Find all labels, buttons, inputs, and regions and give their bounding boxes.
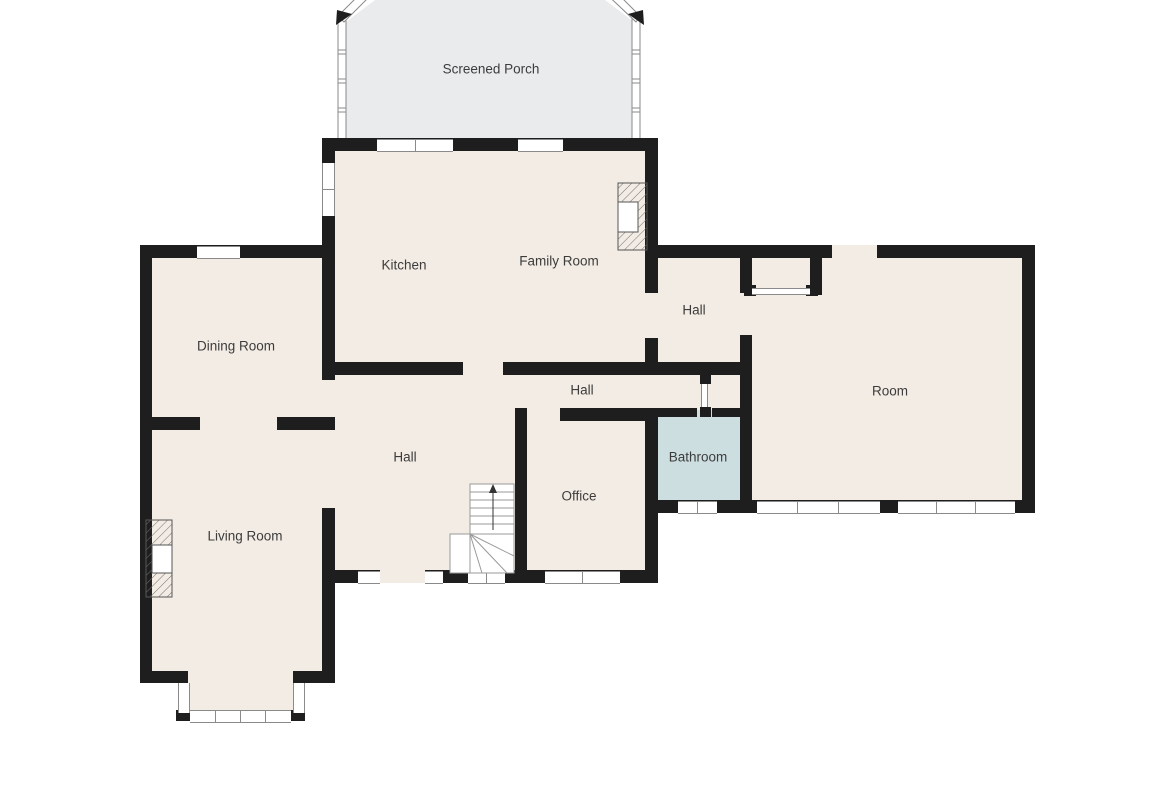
wall: [140, 671, 188, 683]
window: [377, 139, 453, 152]
wall: [140, 245, 152, 683]
doorway-opening: [832, 245, 877, 258]
wall: [645, 408, 658, 583]
wall: [322, 138, 658, 151]
room-label-family-room: Family Room: [519, 254, 599, 269]
wall: [1022, 245, 1035, 512]
wall: [322, 362, 463, 375]
wall: [700, 407, 711, 417]
window: [197, 246, 240, 259]
room-label-living-room: Living Room: [207, 529, 282, 544]
floor-plan: Screened Porch Kitchen Family Room Hall …: [0, 0, 1170, 785]
wall: [645, 362, 750, 375]
dining-living-floor: [146, 250, 334, 680]
window: [757, 501, 880, 514]
kitchen-family-room-floor: [328, 144, 658, 372]
bay-window-front: [190, 710, 291, 723]
wall: [740, 335, 752, 513]
room-label-hall-corridor: Hall: [570, 383, 593, 398]
window: [322, 163, 335, 216]
wall: [877, 245, 1035, 258]
wall: [712, 408, 750, 417]
room-label-office: Office: [561, 489, 596, 504]
window: [468, 571, 505, 584]
bay-window-side: [178, 683, 190, 713]
doorway-opening: [380, 570, 425, 583]
window: [425, 571, 443, 584]
room-label-hall-upper: Hall: [682, 303, 705, 318]
wall: [322, 508, 335, 683]
wall: [515, 408, 527, 583]
closet-door: [752, 288, 810, 295]
room-label-hall-center: Hall: [393, 450, 416, 465]
room-label-kitchen: Kitchen: [381, 258, 426, 273]
bay-window-side: [293, 683, 305, 713]
wall: [140, 417, 200, 430]
wall: [293, 671, 335, 683]
wall: [503, 362, 658, 375]
window: [678, 501, 717, 514]
wall: [700, 375, 711, 384]
wall: [645, 145, 658, 293]
closet-door: [701, 384, 708, 407]
room-label-dining-room: Dining Room: [197, 339, 275, 354]
window: [518, 139, 563, 152]
window: [358, 571, 380, 584]
room-label-bathroom: Bathroom: [669, 450, 728, 465]
window: [545, 571, 620, 584]
hall-office-floor: [326, 368, 656, 578]
room-label-screened-porch: Screened Porch: [443, 62, 540, 77]
room-label-room: Room: [872, 384, 908, 399]
window: [898, 501, 1015, 514]
wall: [560, 408, 645, 421]
wall: [277, 417, 335, 430]
